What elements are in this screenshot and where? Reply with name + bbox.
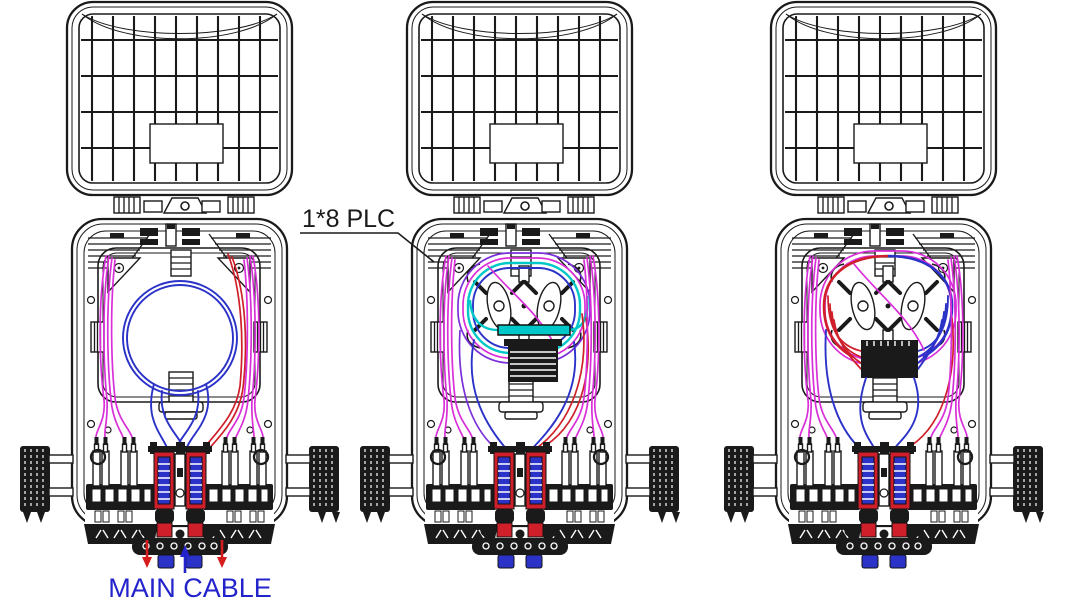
cable-arrowhead-left bbox=[142, 557, 152, 568]
lid-with-grid bbox=[771, 2, 996, 213]
cable-arrowhead-right bbox=[217, 557, 227, 568]
bottom-hardware bbox=[20, 437, 340, 568]
main-cable-label: MAIN CABLE bbox=[108, 573, 272, 603]
plc-splitter-bar bbox=[498, 325, 570, 335]
fiber-distribution-box-diagram: 1*8 PLC MAIN CABLE bbox=[0, 0, 1068, 607]
diagram-canvas: 1*8 PLC MAIN CABLE bbox=[0, 0, 1068, 607]
plc-annotation: 1*8 PLC bbox=[300, 205, 434, 262]
terminal-box-1 bbox=[20, 2, 340, 568]
terminal-box-3 bbox=[724, 2, 1044, 568]
plc-label: 1*8 PLC bbox=[302, 205, 395, 233]
coiled-fiber-loop bbox=[123, 254, 245, 452]
lid-with-grid bbox=[407, 2, 632, 213]
fiber-spools bbox=[831, 264, 945, 348]
bottom-hardware bbox=[360, 437, 680, 568]
bottom-hardware bbox=[724, 437, 1044, 568]
lid-with-grid bbox=[67, 2, 292, 213]
terminal-box-2 bbox=[360, 2, 680, 568]
splice-block bbox=[861, 347, 918, 378]
